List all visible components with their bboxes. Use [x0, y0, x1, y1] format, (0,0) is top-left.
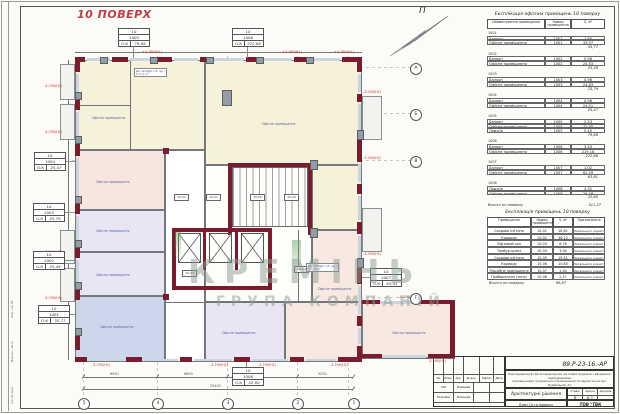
window: [358, 196, 361, 220]
premises-total-row: Всього по поверху 99,87: [487, 281, 608, 285]
column: [75, 136, 82, 144]
partition-wall: [75, 150, 205, 151]
wall-pier: [180, 357, 192, 362]
doc-code: 89.Р-23-16.-АР: [506, 357, 613, 368]
partition-wall: [285, 302, 286, 362]
wall-pier: [357, 222, 362, 234]
wall-pier: [308, 163, 312, 235]
partition-wall: [75, 296, 165, 297]
wall-pier: [163, 148, 169, 154]
office-table-row: 35,77: [487, 45, 608, 50]
wall-pier: [126, 357, 142, 362]
wall-pier: [172, 286, 272, 290]
premises-table-row: Ліфтовий хол 10-03 6,78 Загального корис…: [487, 240, 608, 247]
room-label-1002: 10 1002 О-К25,49: [33, 251, 65, 270]
elevation-mark: +3.190(Н1): [282, 50, 302, 54]
dim-value: 6600: [184, 372, 193, 376]
room-label-1005: 10 1005 О-К79,88: [118, 28, 150, 47]
grid-bubble-a: А: [410, 63, 422, 75]
column: [222, 90, 232, 106]
grid-bubble-2: 2: [292, 398, 304, 410]
core-room-number: 10-03: [182, 270, 197, 277]
wall-pier: [203, 230, 206, 270]
col-header: S, м²: [553, 217, 573, 227]
column: [75, 328, 82, 336]
wall-pier: [450, 300, 455, 358]
office-table-row: 63,61: [487, 175, 608, 180]
wall-pier: [75, 142, 80, 156]
column: [75, 282, 82, 290]
balcony: [362, 208, 382, 252]
wall-pier: [235, 230, 238, 270]
window: [144, 359, 178, 362]
wall-pier: [357, 94, 362, 102]
balcony: [362, 96, 382, 140]
wall-pier: [234, 357, 250, 362]
office-table-row: 222,66: [487, 154, 608, 159]
core-room-number: 10-01: [206, 194, 221, 201]
elevation-mark: -3.290(Н1): [44, 296, 62, 300]
room-name: Офісне приміщення: [96, 229, 129, 233]
room-area: [312, 165, 362, 230]
elevation-mark: -3.290(Н1): [363, 252, 381, 256]
window: [358, 286, 361, 314]
column: [75, 196, 82, 204]
elevation-mark: -3.290(Н1): [44, 130, 62, 134]
wall-pier: [357, 62, 362, 72]
room-name: Офісне приміщення: [100, 325, 133, 329]
dimension-line: [83, 377, 353, 378]
wall-pier: [163, 294, 169, 300]
wall-pier: [158, 57, 172, 62]
elevation-mark: -3.290(Н1): [210, 363, 228, 367]
premises-explication-table: Експлікація приміщень 10 поверху Приміще…: [487, 210, 608, 285]
room-label-1001: 10 1001 О-К35,77: [38, 305, 70, 324]
premises-table-row: Коридор 10-02 36,12 Загального корист.: [487, 234, 608, 241]
window: [76, 158, 79, 200]
dimension-line: [75, 52, 362, 53]
stamp-signature-area: Зм. Кільк. Арк. № док. Підпис Дата ГАП Р…: [433, 356, 505, 407]
elevation-mark: -3.290(Н1): [44, 84, 62, 88]
shading: [175, 232, 181, 258]
room-name: Офісне приміщення: [392, 331, 425, 335]
room-area: [362, 302, 455, 358]
column: [206, 57, 214, 64]
grid-bubble-5: 5: [78, 398, 90, 410]
table-title: Експлікація приміщень 10 поверху: [487, 210, 608, 215]
room-name: Офісне приміщення: [318, 287, 351, 291]
wall-pier: [268, 228, 272, 290]
window: [174, 58, 198, 61]
stamp-row-designer: Розробив Романова: [434, 393, 504, 403]
premises-table-row: Тамбур-шлюз 10-04 3,94 Загального корист…: [487, 247, 608, 254]
room-label-1004: 10 1004 О-К25,47: [34, 152, 66, 171]
column: [150, 57, 158, 64]
partition-wall: [75, 252, 165, 253]
wall-pier: [362, 300, 380, 304]
partition-wall: [204, 60, 205, 150]
room-label-1008: 10 1008 О-К32,60: [232, 367, 264, 386]
room-area: [205, 60, 362, 165]
office-table-row: 25,49: [487, 66, 608, 71]
annotation-note: Дв. №24ДК (зб. др.) S=1,4 м²: [306, 263, 339, 272]
wall-pier: [338, 357, 362, 362]
office-table-body: 1001 Балкон 1001 1,80 Офісне приміщення …: [487, 31, 608, 208]
elevation-mark: -3.290(Н1): [92, 363, 110, 367]
col-header: Номер приміщення: [531, 217, 553, 227]
elevator-shaft: [178, 233, 201, 263]
core-room-number: 10-06: [284, 194, 299, 201]
section-title: Архітектурні рішення: [506, 389, 566, 397]
dimension-line: [83, 389, 353, 390]
drawing-name: План 10-го поверху: [506, 401, 566, 407]
stamp-drawing-name-cell: План 10-го поверху: [505, 400, 567, 407]
column: [310, 228, 318, 238]
annotation-note: Дв. №24ДК (зб. др.) S=1,4 м²: [134, 68, 167, 77]
elevation-mark: +3.190(Н1): [334, 50, 354, 54]
wall-pier: [290, 357, 304, 362]
room-area: [285, 302, 362, 362]
wall-pier: [357, 316, 362, 326]
grid-bubble-1: 1: [348, 398, 360, 410]
column: [310, 160, 318, 170]
dim-value: 5250: [318, 372, 327, 376]
company-name: ТОВ "ТВК "АЛЬЯНС": [568, 401, 613, 407]
stamp-company-cell: ТОВ "ТВК "АЛЬЯНС": [567, 400, 614, 407]
office-table-row: Всього по поверху 511,27: [487, 203, 608, 208]
grid-bubble-v: В: [410, 156, 422, 168]
elevation-mark: -3.290(Н1): [330, 363, 348, 367]
balcony: [60, 104, 75, 140]
balcony: [60, 64, 75, 100]
office-table-row: 25,79: [487, 87, 608, 92]
window: [214, 58, 244, 61]
col-header: Номер приміщення: [545, 19, 571, 29]
north-arrow-icon: [388, 16, 452, 58]
grid-bubble-b: Б: [410, 109, 422, 121]
wall-pier: [357, 138, 362, 162]
column: [357, 130, 364, 140]
window: [252, 359, 288, 362]
sheet-label: Аркуш: [583, 389, 598, 395]
office-table-row: 79,88: [487, 133, 608, 138]
wall-pier: [362, 354, 382, 358]
elevation-mark: -3.290(Н1): [363, 90, 381, 94]
room-label-1003: 10 1003 О-К25,79: [33, 203, 65, 222]
north-label: П: [419, 6, 426, 16]
elevation-mark: -3.290(Н1): [363, 156, 381, 160]
office-table-row: 32,60: [487, 195, 608, 200]
column: [357, 258, 364, 268]
grid-bubble-4: 4: [152, 398, 164, 410]
col-header: S, м²: [571, 19, 605, 29]
window: [89, 359, 124, 362]
premises-table-row: Сходова клітина 10-01 18,81 Загального к…: [487, 227, 608, 234]
partition-wall: [75, 210, 165, 211]
partition-wall: [130, 60, 131, 150]
column: [75, 92, 82, 100]
drawing-sheet: Інв. № ориг. Підпис і дата Зам. інв. № 1…: [0, 0, 620, 414]
window: [358, 164, 361, 182]
office-table-row: 25,47: [487, 108, 608, 113]
window: [358, 328, 361, 344]
grid-bubble-3: 3: [222, 398, 234, 410]
table-header: Найменування приміщення Номер приміщення…: [487, 19, 608, 29]
col-header: Приміщення: [487, 217, 531, 227]
binding-margin-line: [8, 2, 9, 411]
column: [100, 57, 108, 64]
partition-wall: [312, 230, 362, 231]
wall-pier: [75, 62, 80, 72]
window: [194, 359, 232, 362]
table-header: Приміщення Номер приміщення S, м² Призна…: [487, 217, 608, 227]
page-title: 10 ПОВЕРХ: [77, 8, 152, 21]
elevator-shaft: [209, 233, 232, 263]
sheets-label: Аркушів: [598, 389, 613, 395]
room-name: Офісне приміщення: [222, 331, 255, 335]
partition-wall: [165, 302, 362, 303]
wall-pier: [75, 357, 87, 362]
premises-table-row: Сходова клітина 10-05 19,51 Загального к…: [487, 254, 608, 261]
core-room-number: 10-02: [174, 194, 189, 201]
window: [310, 58, 340, 61]
room-label-1007: 10 1007 О-К63,61: [370, 268, 402, 287]
wall-pier: [428, 354, 455, 358]
room-area: [75, 296, 165, 362]
column: [306, 57, 314, 64]
col-header: Призначення: [573, 217, 605, 227]
elevator-shaft: [241, 233, 264, 263]
premises-table-row: Прибиральна (зона) 10-08 2,47 Загального…: [487, 273, 608, 280]
room-name: Офісне приміщення: [262, 122, 295, 126]
dim-value: 6950: [110, 372, 119, 376]
premises-table-row: Коридор 10-06 10,80 Загального корист.: [487, 260, 608, 267]
room-name: Офісне приміщення: [96, 273, 129, 277]
column: [75, 240, 82, 248]
dim-total: 25400: [210, 384, 221, 388]
table-title: Експлікація офісних приміщень 10 поверху: [487, 12, 608, 17]
stamp-section-cell: Архітектурні рішення: [505, 388, 567, 400]
stamp-row-gap: ГАП Романова: [434, 383, 504, 393]
partition-wall: [165, 150, 166, 362]
grid-bubble-g: Г: [410, 293, 422, 305]
stamp-col-headers: Зм. Кільк. Арк. № док. Підпис Дата: [434, 375, 504, 383]
stamp-stage-table: Стадія Аркуш Аркушів Р 8.1: [567, 388, 614, 400]
window: [260, 58, 292, 61]
room-name: Офісне приміщення: [92, 116, 125, 120]
stage-label: Стадія: [568, 389, 583, 395]
elevation-mark: -3.290(Н1): [428, 359, 446, 363]
col-header: Найменування приміщення: [487, 19, 545, 29]
room-name: Офісне приміщення: [96, 180, 129, 184]
window: [306, 359, 336, 362]
premises-table-row: Підсобне приміщення 10-07 1,44 Загальног…: [487, 267, 608, 274]
room-label-1006: 10 1006 О-К222,66: [232, 28, 264, 47]
wall-pier: [172, 228, 272, 232]
window: [382, 355, 426, 358]
margin-label-inv: Інв. № ориг.: [10, 385, 14, 404]
partition-wall: [75, 105, 130, 106]
margin-label-sign: Підпис і дата: [10, 341, 14, 362]
elevation-mark: +3.190(Н1): [142, 50, 162, 54]
wall-pier: [112, 57, 128, 62]
window: [358, 74, 361, 92]
leader-line: [362, 277, 370, 278]
core-room-number: 10-05: [250, 194, 265, 201]
wall-pier: [75, 334, 80, 350]
office-explication-table: Експлікація офісних приміщень 10 поверху…: [487, 12, 608, 208]
column: [256, 57, 264, 64]
premises-table-body: Сходова клітина 10-01 18,81 Загального к…: [487, 227, 608, 280]
margin-label-zam: Зам. інв. №: [10, 300, 14, 318]
stamp-description-cell: Нове будівництво багатоквартирних житлов…: [505, 370, 614, 388]
stamp-doc-code-cell: 89.Р-23-16.-АР: [505, 356, 614, 370]
wall-pier: [357, 184, 362, 194]
